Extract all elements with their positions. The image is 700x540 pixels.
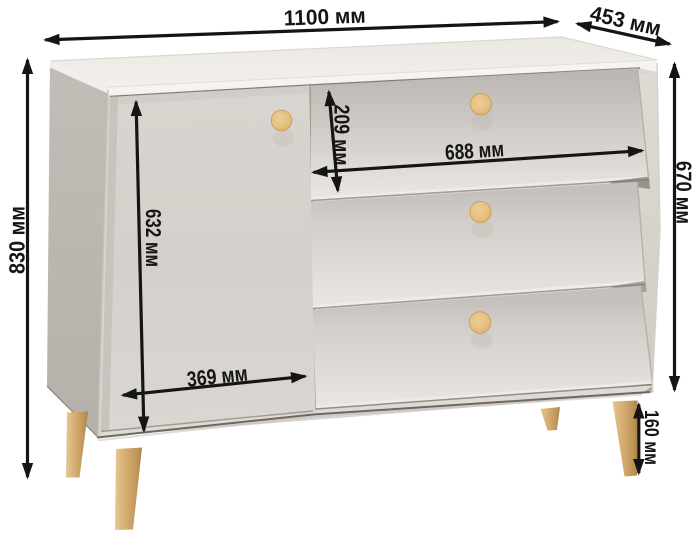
svg-text:1100 мм: 1100 мм: [283, 4, 366, 31]
svg-text:670 мм: 670 мм: [672, 161, 696, 224]
svg-text:160 мм: 160 мм: [640, 410, 662, 465]
svg-text:830 мм: 830 мм: [5, 206, 30, 274]
svg-text:688 мм: 688 мм: [444, 137, 504, 165]
svg-text:209 мм: 209 мм: [330, 105, 354, 166]
svg-text:632 мм: 632 мм: [141, 209, 165, 267]
